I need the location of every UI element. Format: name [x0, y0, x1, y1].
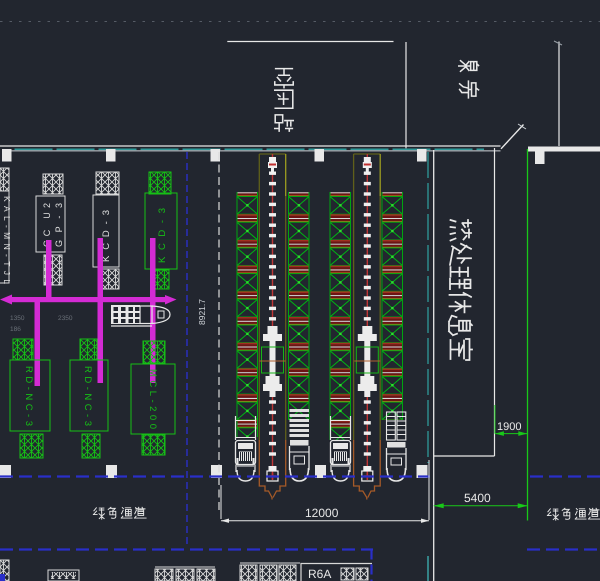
svg-text:2350: 2350	[58, 315, 73, 322]
svg-text:12000: 12000	[305, 506, 339, 520]
svg-text:1350: 1350	[10, 315, 25, 322]
svg-text:186: 186	[10, 326, 21, 333]
svg-text:1900: 1900	[497, 421, 521, 433]
svg-text:5400: 5400	[464, 491, 491, 505]
svg-text:R6A: R6A	[308, 567, 331, 581]
svg-text:8921.7: 8921.7	[197, 299, 207, 325]
